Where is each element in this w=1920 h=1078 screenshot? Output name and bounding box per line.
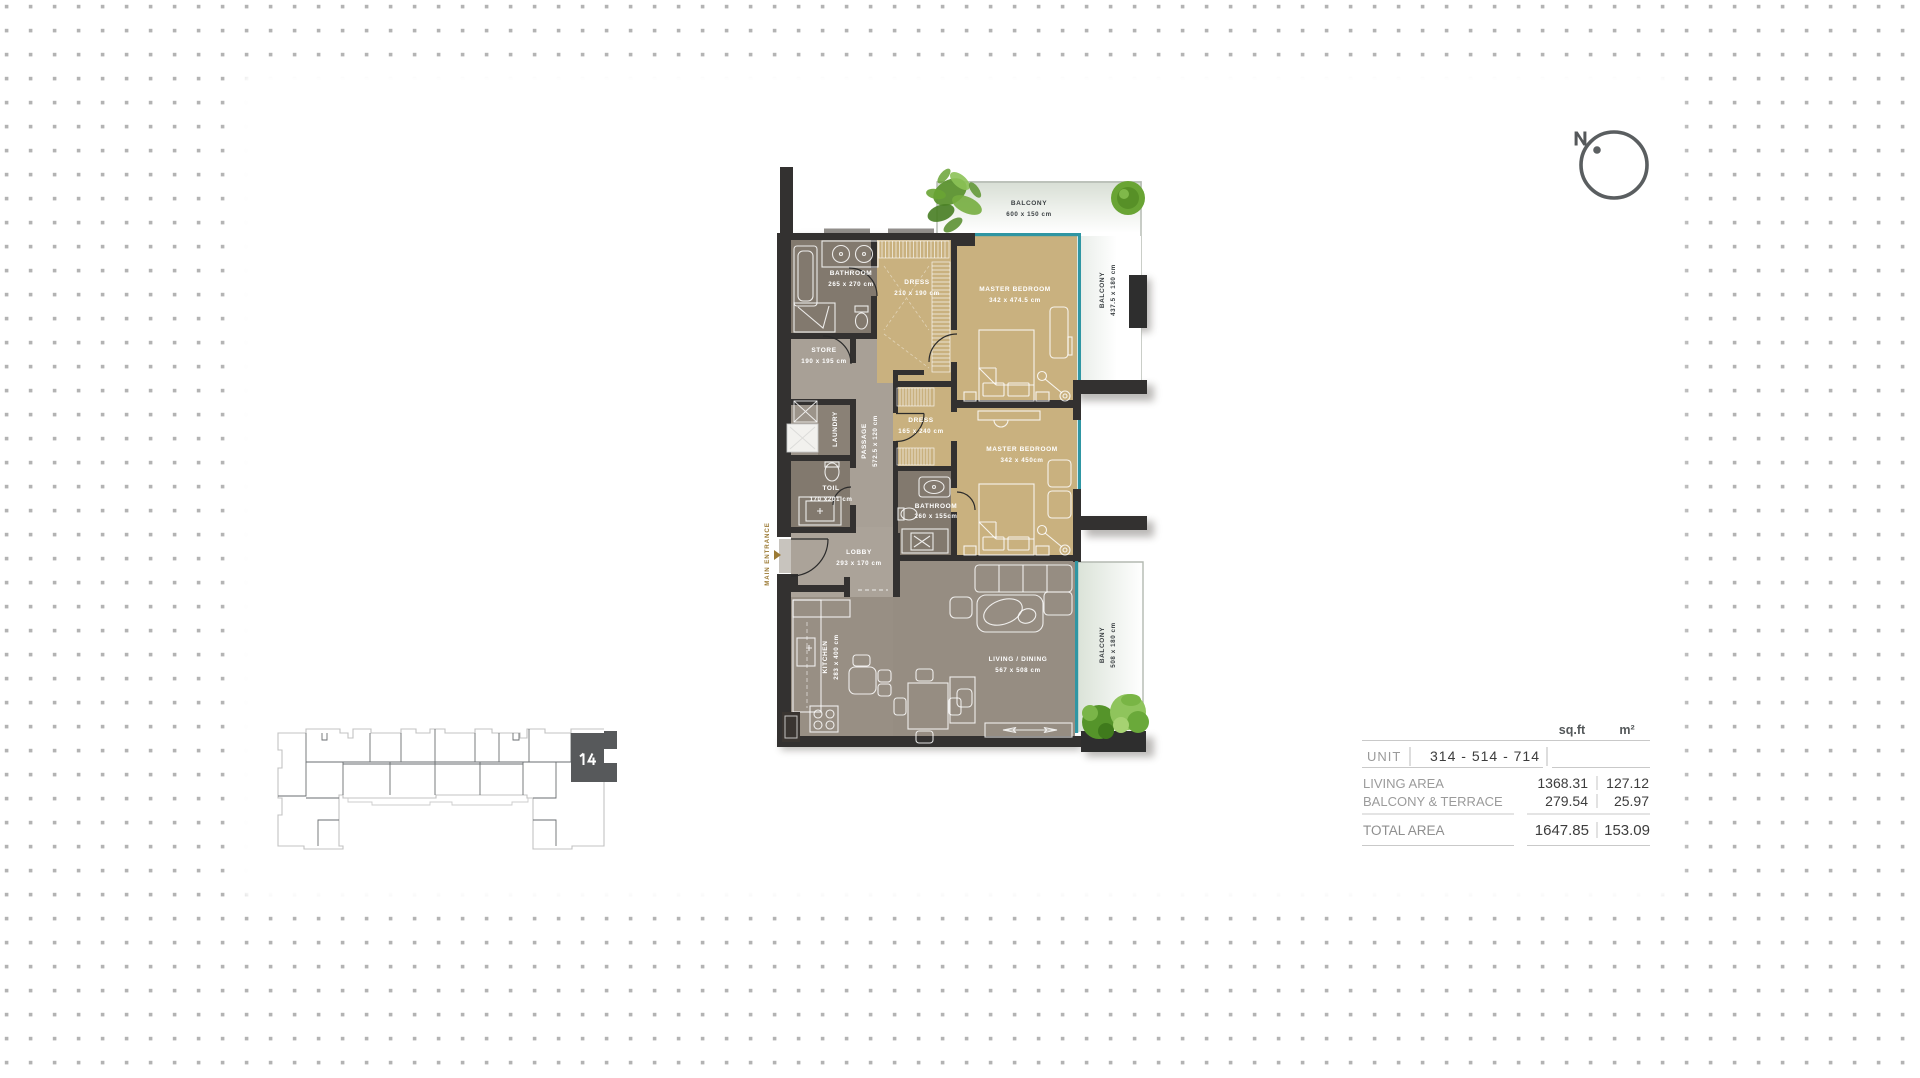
svg-text:BALCONY & TERRACE: BALCONY & TERRACE [1363, 794, 1503, 809]
svg-text:260 x 155cm: 260 x 155cm [914, 513, 957, 520]
svg-text:STORE: STORE [811, 347, 836, 354]
svg-text:BATHROOM: BATHROOM [915, 503, 958, 510]
svg-text:600 x 150 cm: 600 x 150 cm [1006, 211, 1051, 218]
svg-text:sq.ft: sq.ft [1559, 723, 1586, 737]
svg-text:1368.31: 1368.31 [1537, 775, 1588, 791]
svg-text:1647.85: 1647.85 [1535, 822, 1589, 839]
svg-text:PASSAGE: PASSAGE [861, 423, 868, 459]
svg-text:508 x 180 cm: 508 x 180 cm [1110, 622, 1117, 667]
svg-text:190 x 195 cm: 190 x 195 cm [801, 358, 846, 365]
svg-text:437.5 x 180 cm: 437.5 x 180 cm [1110, 264, 1117, 316]
svg-text:m²: m² [1619, 723, 1634, 737]
svg-text:LOBBY: LOBBY [846, 549, 872, 556]
svg-text:TOIL: TOIL [822, 485, 839, 492]
svg-text:UNIT: UNIT [1367, 749, 1401, 764]
svg-text:572.5 x 120 cm: 572.5 x 120 cm [872, 415, 879, 467]
svg-text:DRESS: DRESS [904, 279, 929, 286]
svg-text:BALCONY: BALCONY [1099, 627, 1106, 663]
svg-text:314 - 514 - 714: 314 - 514 - 714 [1430, 748, 1540, 764]
svg-text:127.12: 127.12 [1606, 775, 1649, 791]
svg-text:170 x201 cm: 170 x201 cm [809, 496, 852, 503]
svg-text:153.09: 153.09 [1604, 822, 1650, 839]
svg-text:MASTER BEDROOM: MASTER BEDROOM [986, 446, 1058, 453]
svg-text:DRESS: DRESS [908, 417, 933, 424]
svg-text:TOTAL AREA: TOTAL AREA [1363, 823, 1445, 838]
svg-text:567 x 508 cm: 567 x 508 cm [995, 667, 1040, 674]
svg-text:210 x 190 cm: 210 x 190 cm [894, 290, 939, 297]
svg-text:283 x 400 cm: 283 x 400 cm [833, 634, 840, 679]
svg-text:BALCONY: BALCONY [1011, 200, 1047, 207]
svg-text:BATHROOM: BATHROOM [830, 270, 873, 277]
svg-text:BALCONY: BALCONY [1099, 272, 1106, 308]
svg-text:293 x 170 cm: 293 x 170 cm [836, 560, 881, 567]
svg-text:342 x 450cm: 342 x 450cm [1000, 457, 1043, 464]
svg-text:KITCHEN: KITCHEN [822, 640, 829, 673]
svg-text:265 x 270 cm: 265 x 270 cm [828, 281, 873, 288]
svg-text:LIVING AREA: LIVING AREA [1363, 776, 1444, 791]
svg-text:279.54: 279.54 [1545, 793, 1588, 809]
svg-text:MASTER BEDROOM: MASTER BEDROOM [979, 286, 1051, 293]
svg-text:25.97: 25.97 [1614, 793, 1649, 809]
svg-text:165 x 240 cm: 165 x 240 cm [898, 428, 943, 435]
svg-text:LAUNDRY: LAUNDRY [832, 411, 839, 447]
svg-text:MAIN ENTRANCE: MAIN ENTRANCE [764, 522, 771, 586]
svg-text:342 x 474.5 cm: 342 x 474.5 cm [989, 297, 1041, 304]
svg-text:LIVING / DINING: LIVING / DINING [989, 656, 1048, 663]
